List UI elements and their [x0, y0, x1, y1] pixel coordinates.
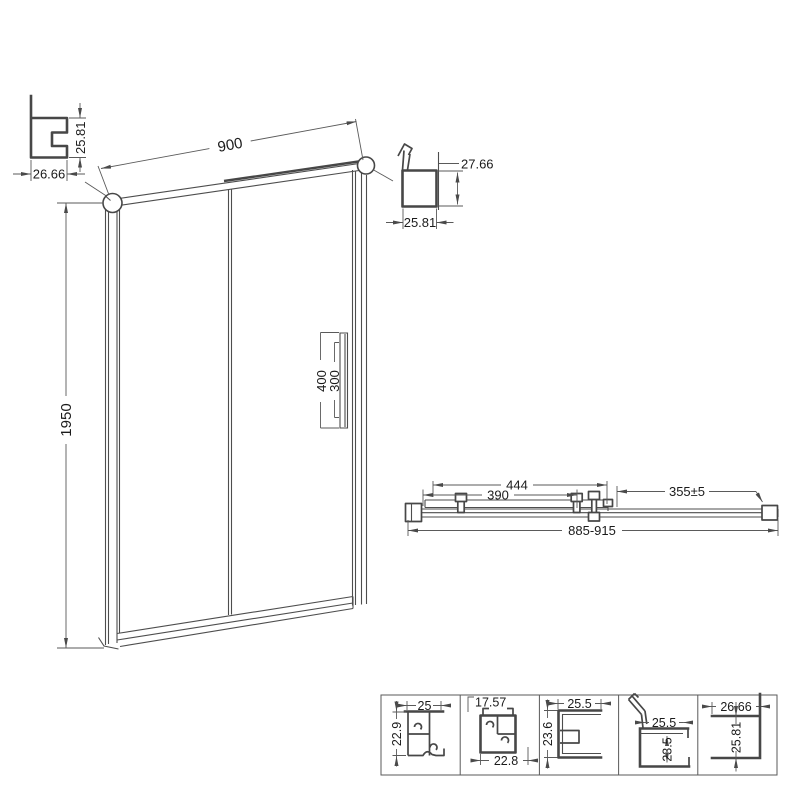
panel-divider: [229, 189, 232, 615]
rail-profile-width-label: 25.81: [404, 215, 437, 230]
top-rail-profile-detail: 27.66 25.81: [372, 144, 494, 230]
plan-right-end-cap: [762, 506, 778, 521]
rail-profile-height-label: 27.66: [461, 157, 494, 172]
handle-holes-label: 300: [327, 370, 342, 392]
profile-cell-3: 25.5 23.6: [541, 697, 610, 769]
plan-slide-label: 355±5: [669, 484, 705, 499]
plan-roller: [589, 492, 600, 522]
profile-cell-2: 17.57 22.8: [468, 696, 538, 769]
top-track: [224, 161, 362, 181]
frame-width-dimension: 900: [98, 119, 363, 195]
top-left-roller: [103, 194, 122, 213]
profile-2-bottom-label: 22.8: [494, 754, 518, 768]
drawing-svg: 25.81 26.66 27.66 25.81: [0, 0, 800, 800]
shower-door-technical-drawing: 25.81 26.66 27.66 25.81: [0, 0, 800, 800]
door-height-label: 1950: [58, 403, 75, 436]
profile-5-side-label: 25.81: [729, 722, 743, 753]
rail-profile-leader: [372, 169, 393, 181]
left-wall-profile: [106, 199, 120, 645]
profile-2-top-label: 17.57: [475, 696, 506, 710]
profile-table: 25 22.9 17.57 22.8: [381, 694, 777, 776]
wall-profile-width-label: 26.66: [33, 167, 66, 182]
rail-profile-shape: [403, 171, 437, 207]
wall-profile-shape: [31, 96, 67, 158]
profile-cell-1: 25 22.9: [390, 699, 450, 767]
profile-cell-4: 25.5 23.5: [629, 694, 692, 767]
plan-glass-label: 444: [506, 478, 528, 493]
profile-1-side-label: 22.9: [390, 722, 404, 746]
frame-width-label: 900: [216, 135, 244, 156]
plan-clip-1: [456, 494, 467, 513]
plan-clips-label: 390: [487, 488, 509, 503]
height-dimension: 1950: [57, 203, 104, 648]
wall-profile-height-label: 25.81: [73, 121, 88, 154]
profile-3-top-label: 25.5: [567, 697, 591, 711]
plan-overall-label: 885-915: [568, 523, 616, 538]
plan-view: 444 390 355±5 885-915: [406, 478, 779, 539]
profile-3-side-label: 23.6: [541, 722, 555, 746]
door-right-stile: [353, 169, 367, 606]
plan-panel-end-bracket: [604, 500, 613, 507]
plan-left-end-cap: [406, 504, 422, 522]
rail-profile-hook: [398, 144, 412, 170]
door-front-view: 400 300 1950 900: [57, 119, 375, 649]
profile-cell-5: 26.66 25.81: [703, 694, 769, 772]
bottom-rail: [117, 597, 353, 647]
top-rail: [112, 163, 366, 207]
wall-profile-detail: 25.81 26.66: [13, 96, 111, 199]
top-right-roller: [358, 157, 375, 174]
profile-4-side-label: 23.5: [660, 737, 674, 761]
